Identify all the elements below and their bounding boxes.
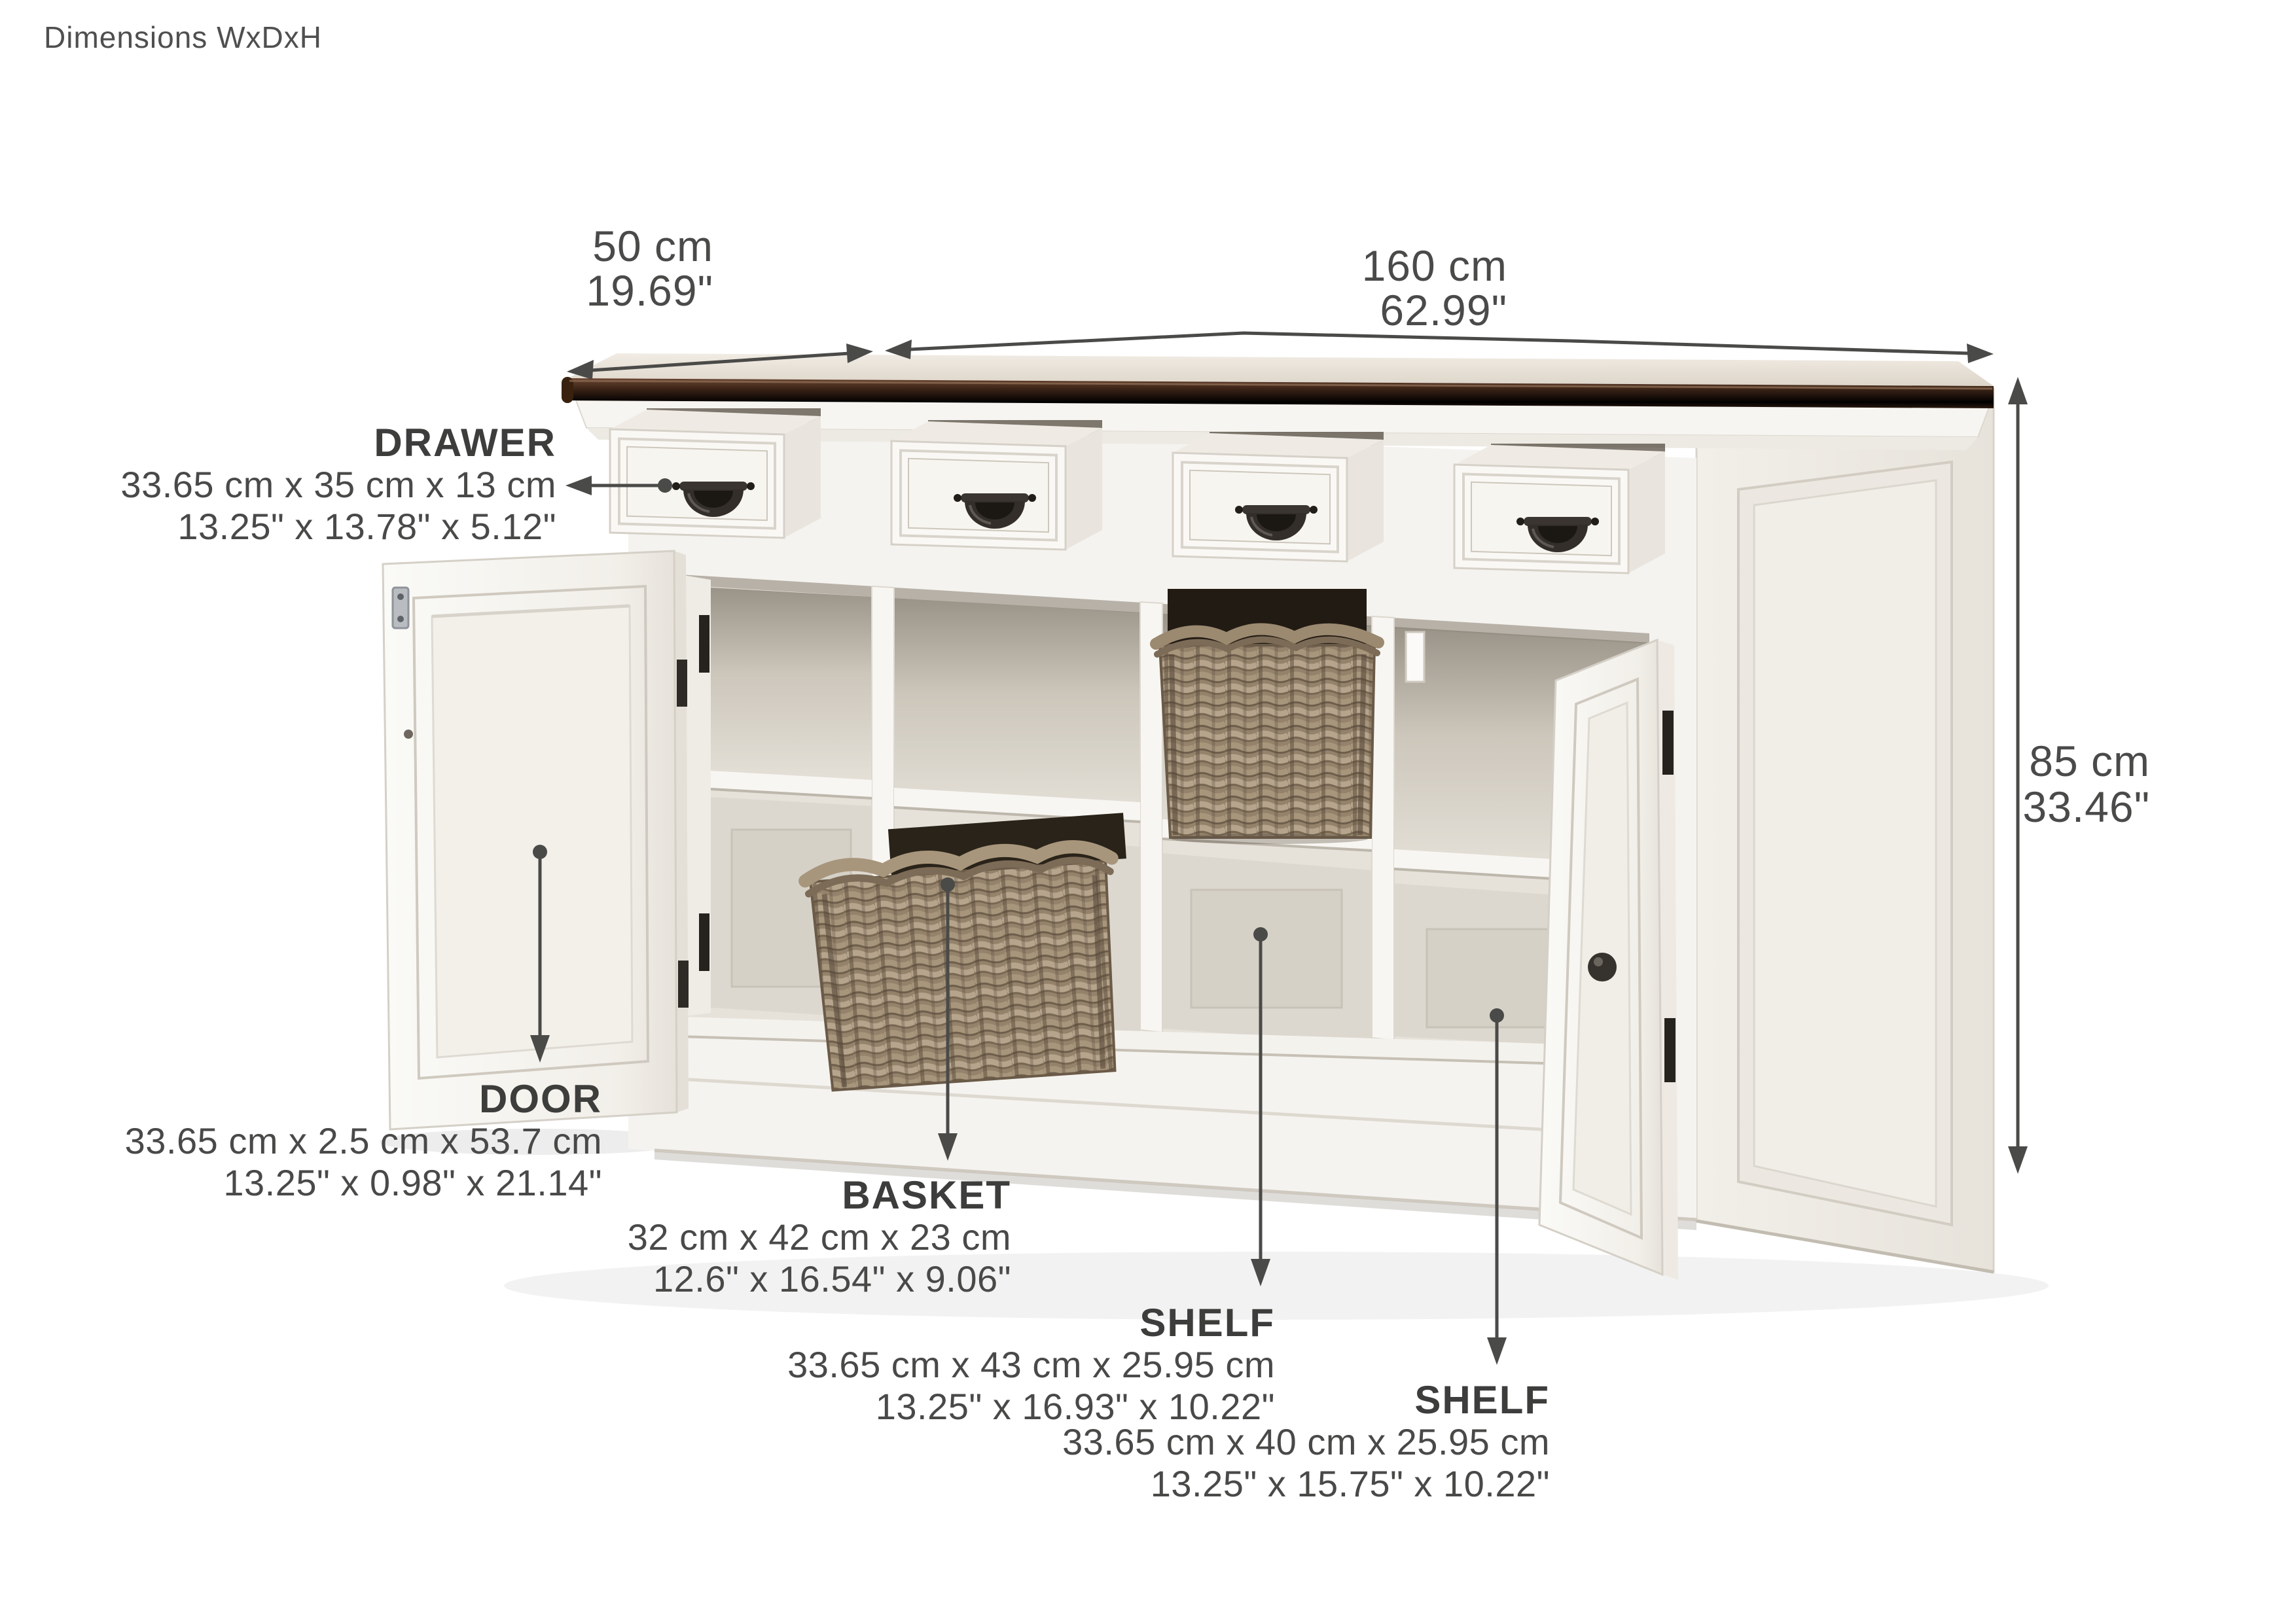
callout-shelf-bottom-label: SHELF [1062, 1379, 1550, 1421]
callout-drawer-imperial: 13.25" x 13.78" x 5.12" [120, 506, 556, 548]
callout-door: DOOR 33.65 cm x 2.5 cm x 53.7 cm 13.25" … [125, 1078, 602, 1204]
callout-basket: BASKET 32 cm x 42 cm x 23 cm 12.6" x 16.… [628, 1174, 1011, 1300]
arrowhead-left-icon [565, 476, 592, 495]
width-metric: 160 cm [1362, 243, 1507, 288]
callout-shelf-bottom-metric: 33.65 cm x 40 cm x 25.95 cm [1062, 1421, 1550, 1463]
drawer-3 [1173, 432, 1384, 561]
callout-door-metric: 33.65 cm x 2.5 cm x 53.7 cm [125, 1120, 602, 1162]
page-title: Dimensions WxDxH [44, 20, 322, 55]
drawer-2 [891, 420, 1102, 550]
dimensions-diagram: Dimensions WxDxH 50 cm 19.69" 160 cm 62.… [0, 0, 2296, 1624]
arrowhead-down-icon [2008, 1146, 2028, 1174]
callout-drawer-metric: 33.65 cm x 35 cm x 13 cm [120, 464, 556, 506]
depth-imperial: 19.69" [586, 268, 713, 313]
arrowhead-down-icon [1487, 1337, 1507, 1365]
callout-shelf-middle-label: SHELF [787, 1302, 1275, 1344]
depth-metric: 50 cm [586, 224, 713, 268]
width-dimension: 160 cm 62.99" [1362, 243, 1507, 332]
cabinet-right-side-panel [1696, 389, 1994, 1272]
callout-drawer: DRAWER 33.65 cm x 35 cm x 13 cm 13.25" x… [120, 422, 556, 548]
cabinet-right-door [1539, 640, 1678, 1280]
depth-dimension: 50 cm 19.69" [586, 224, 713, 313]
callout-basket-metric: 32 cm x 42 cm x 23 cm [628, 1216, 1011, 1258]
callout-basket-imperial: 12.6" x 16.54" x 9.06" [628, 1258, 1011, 1300]
callout-shelf-bottom: SHELF 33.65 cm x 40 cm x 25.95 cm 13.25"… [1062, 1379, 1550, 1505]
height-imperial: 33.46" [2022, 784, 2150, 830]
arrowhead-right-icon [1967, 344, 1994, 363]
leader-dot [658, 478, 672, 493]
callout-drawer-label: DRAWER [120, 422, 556, 464]
rattan-basket-upper [1156, 589, 1378, 844]
callout-shelf-bottom-imperial: 13.25" x 15.75" x 10.22" [1062, 1463, 1550, 1505]
width-imperial: 62.99" [1362, 288, 1507, 332]
callout-basket-label: BASKET [628, 1174, 1011, 1216]
height-dimension: 85 cm 33.46" [2022, 738, 2150, 830]
drawer-1 [610, 408, 821, 538]
callout-door-imperial: 13.25" x 0.98" x 21.14" [125, 1162, 602, 1204]
arrowhead-up-icon [2008, 377, 2028, 404]
callout-door-label: DOOR [125, 1078, 602, 1120]
height-metric: 85 cm [2022, 738, 2150, 784]
drawer-4 [1454, 444, 1665, 573]
